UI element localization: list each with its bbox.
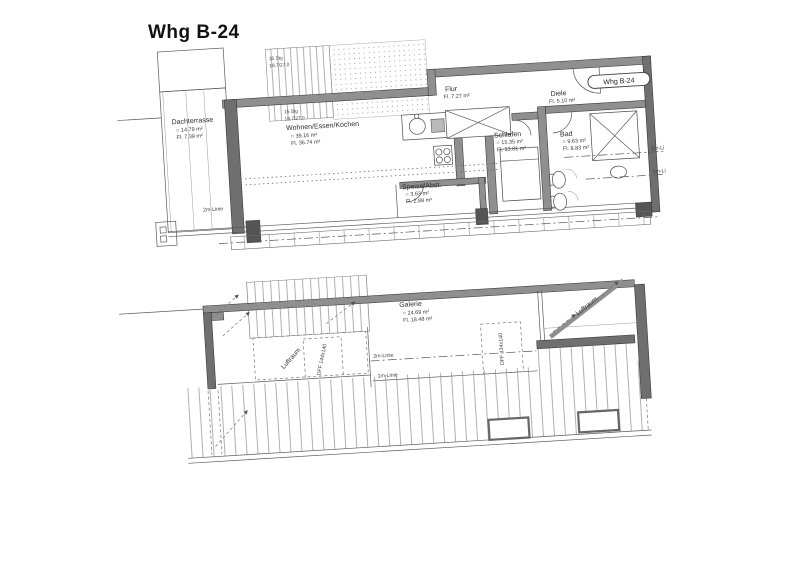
mark-dff-right: DFF 134x140 [498, 333, 506, 365]
svg-text:15 Stg: 15 Stg [269, 55, 284, 62]
mark-1m-right: 1m-Li [652, 168, 666, 175]
svg-text:Fl. 8.83 m²: Fl. 8.83 m² [563, 145, 590, 153]
mark-2m-gallery: 2m-Linie [373, 353, 394, 360]
room-label-dachterrasse: Dachterrasse ○ 14.79 m² Fl. 7.39 m² [171, 117, 214, 142]
floor-plan-page: Whg B-24 [0, 0, 800, 566]
floor-plan-drawing: Whg B-24 Dachterrasse ○ 14.79 m² Fl. 7.3… [0, 0, 800, 566]
svg-text:Fl. 18.48 m²: Fl. 18.48 m² [403, 316, 433, 324]
mark-luftraum-left: Luftraum [280, 347, 302, 371]
svg-text:18,7/27,0: 18,7/27,0 [269, 62, 290, 69]
svg-text:Fl. 7.39 m²: Fl. 7.39 m² [176, 133, 203, 141]
svg-text:Speise/Abst.: Speise/Abst. [402, 182, 442, 191]
roof-hatch [183, 342, 652, 463]
room-label-speise: Speise/Abst. ○ 3.63 m² Fl. 2.88 m² [402, 182, 443, 205]
svg-text:Fl. 2.88 m²: Fl. 2.88 m² [406, 198, 433, 206]
room-label-wohnen: Wohnen/Essen/Kochen ○ 39.16 m² Fl. 36.74… [286, 121, 360, 147]
svg-text:Diele: Diele [550, 90, 566, 98]
room-label-bad: Bad ○ 9.63 m² Fl. 8.83 m² [560, 130, 590, 153]
gallery-2m-line [371, 351, 537, 361]
shower-crossed [590, 111, 640, 161]
room-label-flur: Flur Fl. 7.27 m² [443, 85, 470, 101]
mark-2m-left: 2m-Linie [203, 206, 224, 213]
lower-floor-plan: Galerie ○ 24.69 m² Fl. 18.48 m² Luftraum… [118, 258, 654, 467]
svg-text:Dachterrasse: Dachterrasse [171, 117, 213, 127]
svg-text:18,7/27,0: 18,7/27,0 [284, 115, 305, 122]
svg-text:Flur: Flur [445, 86, 458, 94]
bed [500, 147, 541, 201]
svg-text:Galerie: Galerie [399, 301, 422, 309]
room-label-galerie: Galerie ○ 24.69 m² Fl. 18.48 m² [399, 300, 433, 324]
upper-floor-plan: Whg B-24 Dachterrasse ○ 14.79 m² Fl. 7.3… [113, 21, 669, 256]
svg-text:Fl. 7.27 m²: Fl. 7.27 m² [443, 93, 470, 101]
room-label-diele: Diele Fl. 5.10 m² [548, 90, 575, 106]
kitchen-fixtures [402, 112, 453, 167]
svg-text:Fl. 5.10 m²: Fl. 5.10 m² [549, 98, 576, 106]
svg-text:Fl. 36.74 m²: Fl. 36.74 m² [291, 139, 321, 147]
mark-dff-left: DFF 144x140 [316, 343, 328, 376]
svg-text:15 Stg: 15 Stg [284, 109, 299, 116]
mark-luftraum-right: Luftraum [575, 296, 599, 317]
svg-text:Bad: Bad [560, 131, 573, 139]
mark-2m-right: 2m-Li [651, 145, 665, 152]
svg-text:Wohnen/Essen/Kochen: Wohnen/Essen/Kochen [286, 121, 359, 132]
room-label-schlafen: Schlafen ○ 15.35 m² Fl. 13.81 m² [494, 131, 527, 154]
apartment-tag: Whg B-24 [588, 72, 651, 89]
mark-1m-gallery: 1m-Linie [377, 372, 398, 379]
